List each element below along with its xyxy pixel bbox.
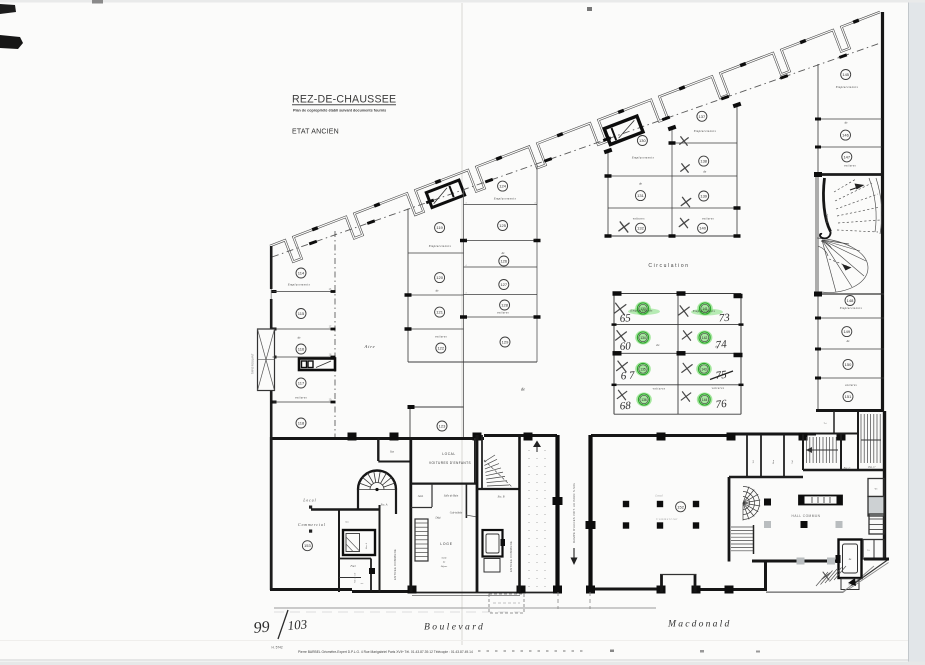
- svg-text:132: 132: [637, 226, 644, 231]
- svg-text:131: 131: [637, 193, 644, 198]
- svg-text:136: 136: [641, 398, 647, 402]
- svg-text:Jard.: Jard.: [418, 495, 424, 498]
- svg-text:Emplacements: Emplacements: [428, 244, 452, 248]
- svg-text:Sas: Sas: [390, 451, 394, 454]
- svg-text:LOCAL: LOCAL: [442, 452, 455, 456]
- svg-text:voitures: voitures: [295, 396, 307, 400]
- svg-text:121: 121: [436, 310, 443, 315]
- svg-text:140: 140: [699, 226, 706, 231]
- svg-text:118: 118: [298, 421, 305, 426]
- svg-text:129: 129: [502, 340, 509, 345]
- svg-text:LOGE: LOGE: [440, 542, 453, 546]
- svg-text:73: 73: [718, 312, 730, 325]
- svg-text:de: de: [521, 387, 525, 392]
- svg-text:Emplacements: Emplacements: [493, 197, 517, 201]
- svg-text:VOITURES D'ENFANTS: VOITURES D'ENFANTS: [429, 461, 471, 465]
- svg-text:135: 135: [640, 367, 646, 371]
- svg-text:Pierre BARBEL Géomètre-Expert: Pierre BARBEL Géomètre-Expert D.P.L.G. 4…: [298, 650, 473, 654]
- svg-text:126: 126: [500, 259, 507, 264]
- svg-text:114: 114: [298, 271, 305, 276]
- svg-text:Sas: Sas: [345, 521, 349, 524]
- svg-text:Emplacements: Emplacements: [835, 85, 859, 89]
- svg-text:151: 151: [845, 394, 852, 399]
- svg-text:60: 60: [619, 340, 631, 353]
- svg-text:Circulation: Circulation: [648, 263, 689, 269]
- svg-text:H. 5742: H. 5742: [272, 646, 283, 650]
- svg-text:Tvi: Tvi: [824, 423, 827, 425]
- svg-text:120: 120: [436, 275, 443, 280]
- svg-text:Tvi: Tvi: [867, 550, 870, 552]
- svg-text:Local: Local: [654, 494, 662, 498]
- svg-text:122: 122: [437, 346, 444, 351]
- svg-text:As: As: [848, 558, 852, 561]
- svg-text:65: 65: [619, 312, 631, 325]
- svg-text:voitures: voitures: [653, 387, 666, 391]
- svg-text:RAMPE: RAMPE: [825, 214, 829, 223]
- svg-text:6 7: 6 7: [620, 370, 635, 383]
- svg-text:Boulevard: Boulevard: [424, 622, 485, 633]
- svg-text:127: 127: [500, 282, 507, 287]
- svg-text:138: 138: [700, 159, 707, 164]
- svg-text:76: 76: [715, 398, 728, 411]
- svg-text:Commercial: Commercial: [298, 523, 326, 527]
- svg-text:116: 116: [298, 347, 305, 352]
- svg-text:153: 153: [304, 543, 311, 548]
- svg-text:74: 74: [715, 338, 728, 351]
- svg-text:119: 119: [436, 225, 443, 230]
- svg-text:voitures: voitures: [844, 164, 856, 168]
- svg-text:Aire: Aire: [364, 344, 376, 349]
- svg-text:ENTREE COMMUNE: ENTREE COMMUNE: [509, 541, 513, 572]
- svg-text:142: 142: [702, 336, 708, 340]
- svg-text:Vide sa vide: Vide sa vide: [355, 573, 357, 584]
- svg-text:68: 68: [619, 400, 631, 413]
- svg-text:voitures: voitures: [845, 383, 857, 387]
- svg-text:RAMPE D'ACCES VOIT. AU PARC S.: RAMPE D'ACCES VOIT. AU PARC S.SOL: [572, 482, 576, 543]
- svg-text:139: 139: [700, 194, 707, 199]
- svg-text:Local: Local: [302, 499, 316, 503]
- svg-text:Macdonald: Macdonald: [667, 619, 732, 630]
- svg-text:Fuel: Fuel: [350, 565, 356, 568]
- svg-text:Dégt: Dégt: [434, 517, 440, 520]
- svg-text:Cab-toilette: Cab-toilette: [450, 512, 463, 515]
- svg-text:124: 124: [499, 184, 506, 189]
- svg-text:Emplacements: Emplacements: [629, 309, 653, 313]
- svg-text:134: 134: [640, 336, 646, 340]
- svg-text:150: 150: [845, 362, 852, 367]
- svg-text:Séjour: Séjour: [441, 565, 448, 568]
- svg-text:Emplacements: Emplacements: [287, 283, 311, 287]
- svg-text:ENTREE COMMUNE: ENTREE COMMUNE: [393, 549, 397, 580]
- svg-text:147: 147: [843, 154, 850, 159]
- svg-text:125: 125: [499, 223, 506, 228]
- svg-text:Res. A: Res. A: [365, 542, 368, 550]
- svg-text:Plan de copropriété établi sui: Plan de copropriété établi suivant docum…: [293, 109, 386, 113]
- svg-text:144: 144: [702, 398, 708, 402]
- svg-text:voitures: voitures: [435, 335, 447, 339]
- svg-text:ETAT ANCIEN: ETAT ANCIEN: [292, 129, 339, 136]
- svg-text:143: 143: [701, 367, 707, 371]
- svg-text:146: 146: [842, 133, 849, 138]
- svg-text:TAPIS ROULANT: TAPIS ROULANT: [251, 353, 255, 374]
- svg-text:HALL COMMUN: HALL COMMUN: [792, 514, 821, 518]
- svg-text:103: 103: [287, 616, 308, 633]
- svg-text:voitures: voitures: [633, 217, 645, 221]
- svg-text:Emplacements: Emplacements: [693, 129, 717, 133]
- svg-text:Salle de Bain: Salle de Bain: [444, 495, 459, 498]
- svg-text:117: 117: [298, 381, 305, 386]
- svg-text:Dou: Dou: [772, 459, 775, 465]
- svg-text:115: 115: [298, 311, 305, 316]
- svg-text:voitures: voitures: [702, 217, 714, 221]
- svg-text:Esc. B: Esc. B: [497, 496, 505, 499]
- svg-text:REZ-DE-CHAUSSEE: REZ-DE-CHAUSSEE: [292, 94, 396, 106]
- svg-text:Tél: Tél: [752, 460, 755, 463]
- svg-text:130: 130: [639, 138, 646, 143]
- svg-text:Emplacements: Emplacements: [692, 309, 716, 313]
- svg-text:145: 145: [842, 72, 849, 77]
- svg-text:149: 149: [843, 329, 850, 334]
- svg-text:Emplacements: Emplacements: [631, 156, 655, 160]
- svg-text:148: 148: [847, 298, 854, 303]
- svg-text:123: 123: [439, 424, 446, 429]
- svg-text:de: de: [656, 343, 660, 347]
- svg-text:99: 99: [253, 619, 270, 637]
- svg-text:137: 137: [699, 114, 706, 119]
- svg-text:Esc. A: Esc. A: [380, 504, 388, 507]
- svg-text:voitures: voitures: [497, 311, 509, 315]
- svg-text:voitures: voitures: [712, 386, 725, 390]
- svg-text:152: 152: [677, 504, 684, 509]
- svg-text:Esc. C': Esc. C': [867, 466, 876, 469]
- svg-text:128: 128: [501, 303, 508, 308]
- svg-text:Emplacements: Emplacements: [839, 306, 863, 310]
- svg-text:Commercial: Commercial: [656, 517, 678, 521]
